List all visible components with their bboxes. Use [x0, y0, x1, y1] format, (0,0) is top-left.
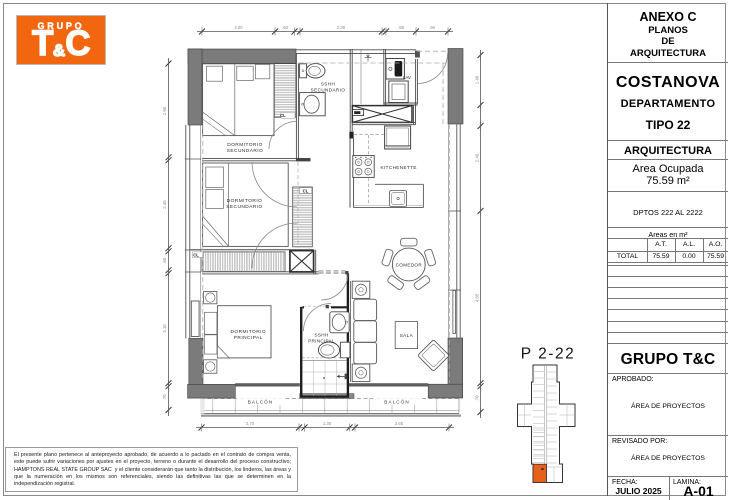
svg-text:.70: .70 — [162, 394, 167, 401]
svg-text:1.30: 1.30 — [323, 421, 332, 426]
svg-text:COMEDOR: COMEDOR — [396, 263, 423, 268]
svg-text:SECUNDARIO: SECUNDARIO — [311, 87, 346, 92]
svg-text:PRINCIPAL: PRINCIPAL — [234, 335, 263, 341]
svg-text:SALA: SALA — [400, 333, 414, 338]
svg-text:LAV: LAV — [403, 75, 411, 80]
svg-text:2.40: 2.40 — [474, 153, 479, 162]
svg-text:.60: .60 — [282, 25, 289, 30]
svg-text:4.85: 4.85 — [474, 293, 479, 302]
svg-text:1.40: 1.40 — [474, 75, 479, 84]
svg-text:PRINCIPAL: PRINCIPAL — [308, 339, 335, 344]
svg-text:2.60: 2.60 — [162, 106, 167, 115]
svg-text:2.30: 2.30 — [337, 25, 346, 30]
svg-text:.90: .90 — [429, 25, 436, 30]
svg-text:2.65: 2.65 — [395, 421, 404, 426]
svg-text:DORMITORIO: DORMITORIO — [227, 198, 263, 204]
svg-text:KITCHENETTE: KITCHENETTE — [381, 165, 417, 170]
svg-text:2.45: 2.45 — [162, 200, 167, 209]
svg-text:2.70: 2.70 — [246, 421, 255, 426]
svg-text:SECUNDARIO: SECUNDARIO — [226, 204, 262, 210]
svg-text:CL: CL — [303, 188, 309, 193]
svg-text:3.10: 3.10 — [162, 324, 167, 333]
svg-text:2.00: 2.00 — [234, 25, 243, 30]
svg-text:SECUNDARIO: SECUNDARIO — [227, 148, 263, 154]
svg-text:SSHH: SSHH — [321, 81, 335, 86]
svg-text:CL: CL — [193, 252, 199, 257]
svg-text:.70: .70 — [474, 395, 479, 402]
svg-text:DORMITORIO: DORMITORIO — [231, 329, 267, 335]
svg-text:SSHH: SSHH — [315, 333, 329, 338]
svg-text:DORMITORIO: DORMITORIO — [227, 142, 263, 148]
svg-text:CL: CL — [280, 113, 286, 118]
svg-text:BALCÓN: BALCÓN — [248, 399, 274, 405]
svg-text:.85: .85 — [398, 25, 405, 30]
svg-text:.60: .60 — [162, 257, 167, 264]
svg-text:P 2-22: P 2-22 — [521, 346, 575, 363]
svg-text:BALCÓN: BALCÓN — [384, 399, 410, 405]
